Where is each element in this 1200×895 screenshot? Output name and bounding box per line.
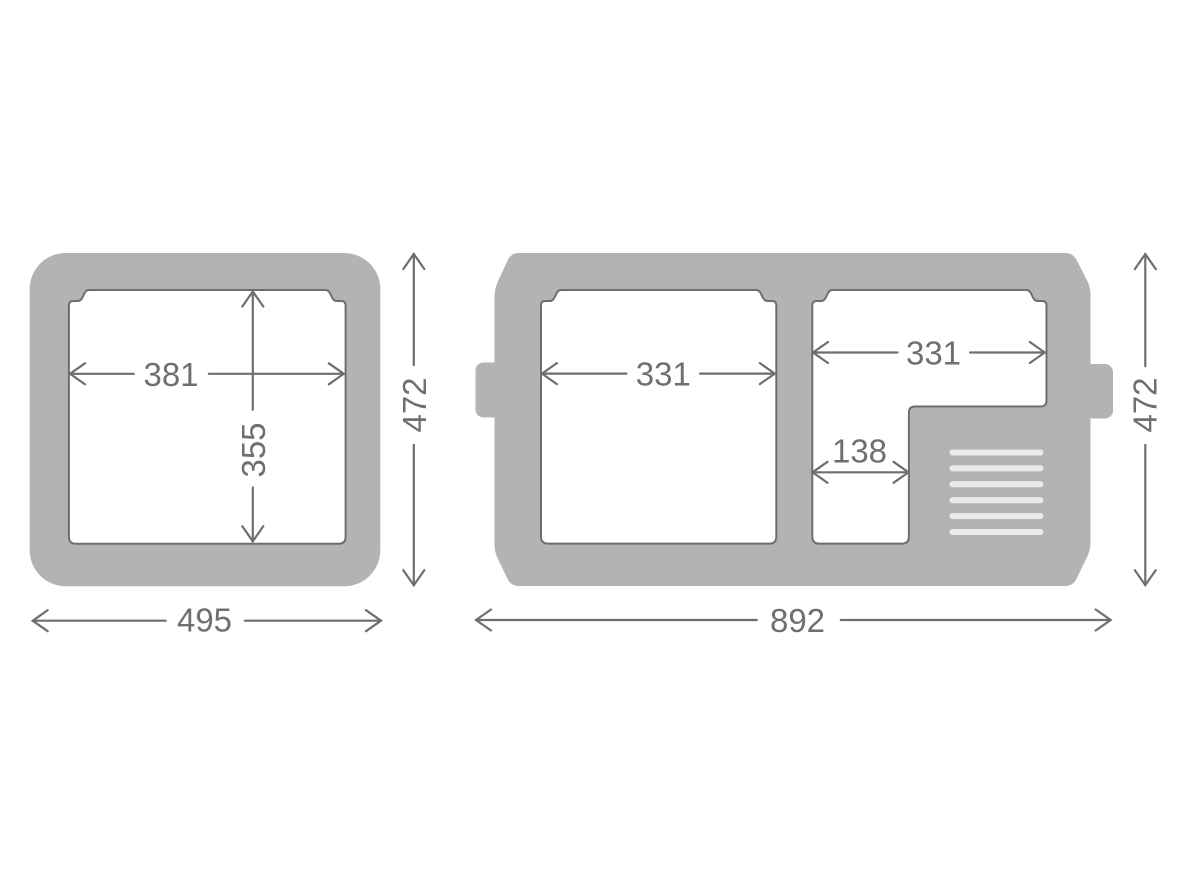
svg-text:381: 381 xyxy=(143,356,198,393)
svg-text:138: 138 xyxy=(832,432,887,469)
svg-text:331: 331 xyxy=(906,335,961,372)
svg-text:892: 892 xyxy=(770,602,825,639)
svg-text:472: 472 xyxy=(1127,377,1164,432)
svg-text:355: 355 xyxy=(235,422,272,477)
svg-text:331: 331 xyxy=(636,356,691,393)
svg-text:472: 472 xyxy=(396,377,433,432)
svg-text:495: 495 xyxy=(177,601,232,638)
